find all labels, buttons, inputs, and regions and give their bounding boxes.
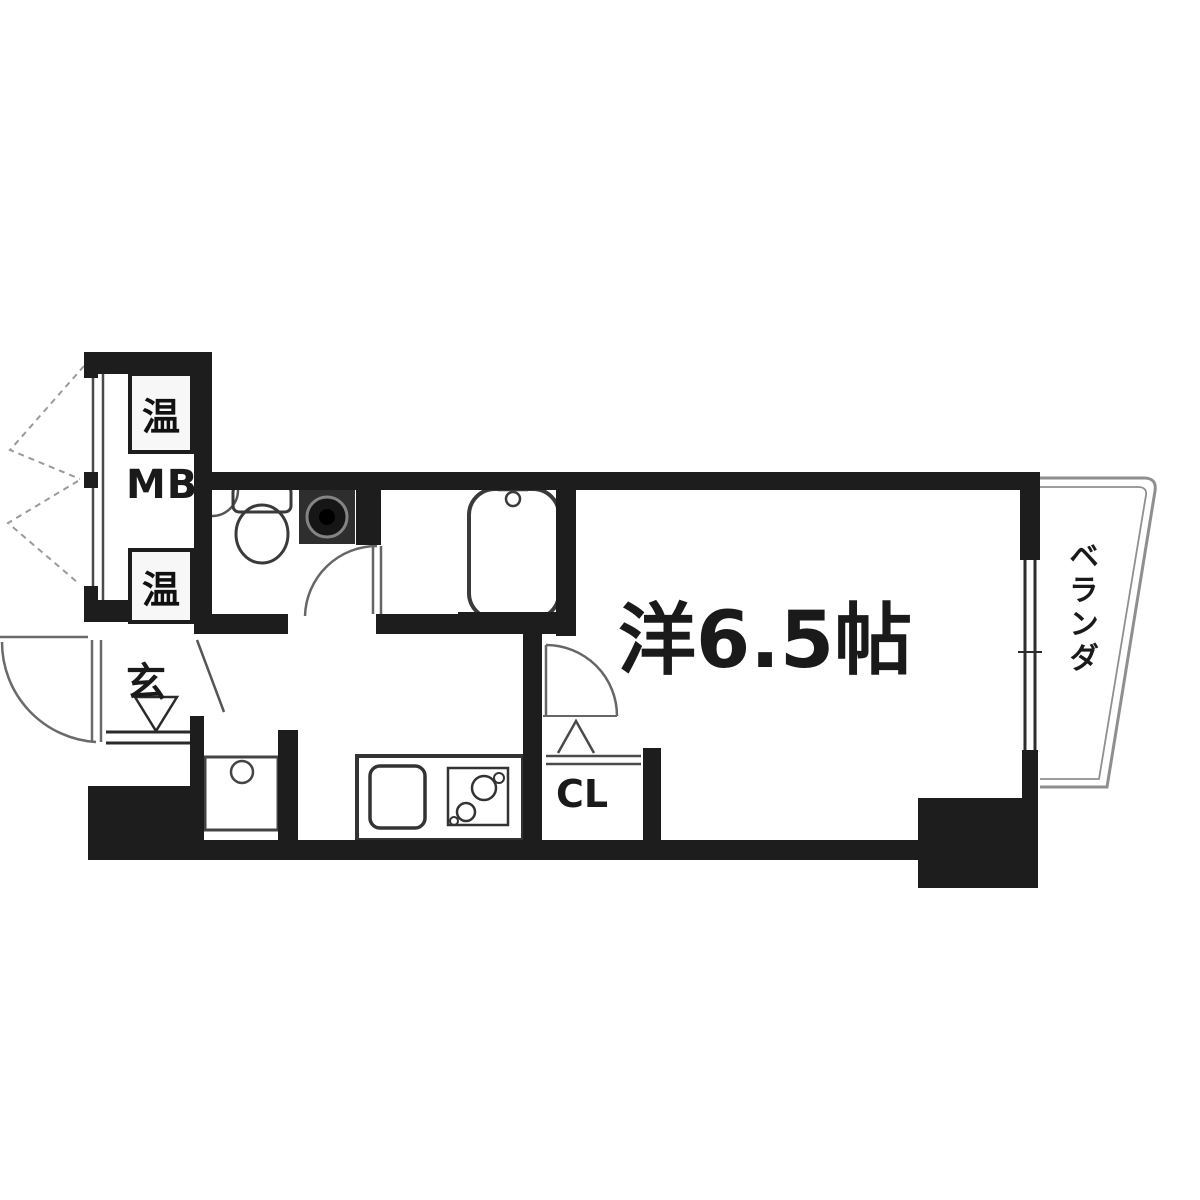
floor-plan: 温 温 MB 玄 CL 洋6.5帖 ベランダ [0, 0, 1200, 1200]
wall [190, 716, 204, 842]
entrance-label: 玄 [126, 650, 166, 708]
wall [1022, 750, 1038, 802]
wall [356, 487, 381, 545]
wall [1020, 472, 1040, 560]
room-door-swing-icon [543, 645, 617, 716]
main-room-label: 洋6.5帖 [618, 578, 912, 690]
meter-box-door-swing-icon [8, 366, 84, 582]
heater-box-top-label: 温 [142, 386, 180, 441]
hall-door-leaf [197, 640, 224, 712]
kitchen-counter-icon [357, 756, 523, 840]
wall [84, 586, 98, 622]
heater-box-bottom-label: 温 [142, 559, 180, 614]
meter-box-label: MB [126, 462, 198, 508]
wall [643, 748, 661, 844]
wall [458, 612, 558, 634]
heater-box-top: 温 [128, 372, 194, 454]
wall [556, 472, 576, 636]
bathtub-icon [469, 489, 559, 619]
balcony-label: ベランダ [1058, 540, 1102, 710]
closet-label: CL [556, 772, 608, 816]
washing-machine-pan-icon [205, 757, 278, 830]
appliance-icon [299, 489, 355, 544]
wall [278, 730, 298, 842]
wall [194, 472, 1040, 490]
wall [194, 614, 288, 634]
entrance-door-swing-icon [0, 637, 101, 742]
wall [84, 352, 98, 378]
wall [84, 472, 98, 488]
wall [88, 840, 940, 860]
wall [523, 612, 542, 844]
heater-box-bottom: 温 [128, 548, 194, 624]
closet-folding-door-icon [546, 721, 641, 764]
balcony-window-icon [1018, 556, 1042, 752]
wall [88, 786, 196, 844]
toilet-fixture [233, 486, 291, 563]
wall [918, 798, 1038, 888]
washroom-door-swing-icon [305, 546, 381, 616]
